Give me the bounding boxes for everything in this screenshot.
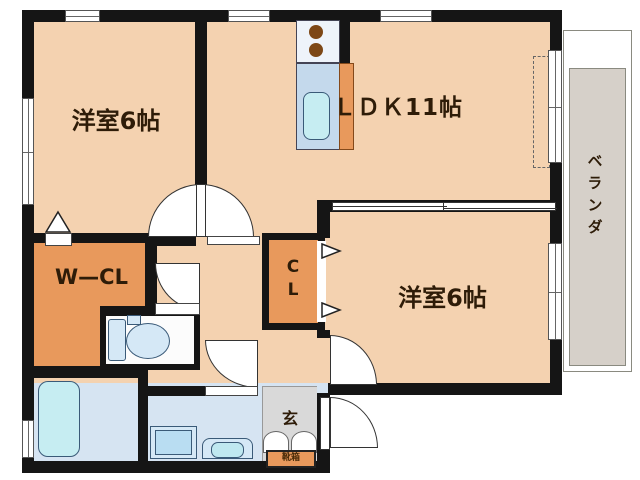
front-door-arc xyxy=(330,397,378,448)
toilet-bowl-fixture xyxy=(126,323,170,359)
closet-folding-door-icon-top xyxy=(320,243,342,259)
window-top-bedroom1 xyxy=(65,10,100,22)
sink-bowl-fixture xyxy=(211,442,244,458)
entrance-label: 玄 xyxy=(275,410,305,428)
bedroom2-label: 洋室6帖 xyxy=(340,285,545,311)
window-left-bathroom xyxy=(22,420,34,458)
wall-bedroom2-left-lower xyxy=(317,330,330,338)
shoe-cabinet-label: 靴箱 xyxy=(266,454,316,464)
bedroom1-label: 洋室6帖 xyxy=(35,108,197,134)
closet-label-l: L xyxy=(270,281,316,300)
toilet-doorway xyxy=(155,303,200,315)
closet-label-c: C xyxy=(270,258,316,277)
toilet-flush-fixture xyxy=(127,315,141,325)
wall-washroom-top xyxy=(140,386,205,396)
stove-burner-icon-2 xyxy=(309,43,323,57)
window-veranda-ldk xyxy=(548,50,562,163)
wcl-doorway xyxy=(45,233,72,246)
floor-plan-canvas: ベランダ W—CL 玄 靴箱 C xyxy=(0,0,640,480)
window-veranda-bedroom2 xyxy=(548,243,562,340)
walk-in-closet-floor-lower xyxy=(34,243,100,366)
front-door-leaf xyxy=(320,397,330,450)
wcl-folding-door-icon xyxy=(45,210,72,234)
window-top-ldk-left xyxy=(228,10,270,22)
stove-burner-icon-1 xyxy=(309,25,323,39)
bathtub-fixture xyxy=(38,381,80,457)
walk-in-closet-label: W—CL xyxy=(34,266,149,289)
wall-bath-washroom-divider xyxy=(138,378,148,461)
toilet-tank-fixture xyxy=(108,319,126,361)
closet-folding-door-icon-bottom xyxy=(320,302,342,318)
ldk-label: ＬＤＫ11帖 xyxy=(278,96,518,121)
wall-bedroom1-ldk-divider xyxy=(195,10,207,185)
hall-door-leaf xyxy=(196,184,206,237)
window-left-bedroom1 xyxy=(22,98,34,205)
veranda-label: ベランダ xyxy=(586,132,603,262)
sliding-door xyxy=(332,202,556,211)
window-top-ldk-right xyxy=(380,10,432,22)
washroom-doorway xyxy=(205,386,258,396)
hall-doorway xyxy=(207,236,260,245)
washing-machine-drum xyxy=(155,430,192,455)
